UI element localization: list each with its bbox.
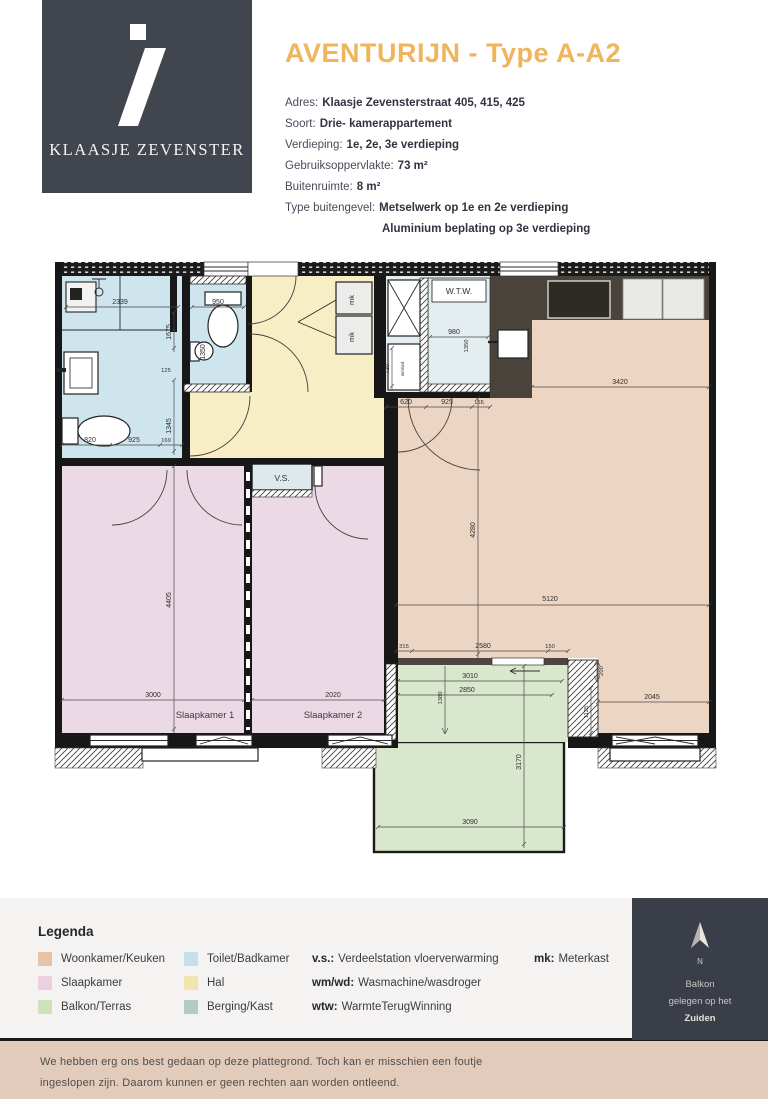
dim-150: 150 bbox=[545, 644, 555, 650]
dim-toilet-top: 950 bbox=[212, 299, 224, 306]
floorplan-page: { "header": { "logo_text": "KLAASJE ZEVE… bbox=[0, 0, 768, 1099]
swatch-woonkamer bbox=[38, 952, 52, 966]
dim-2580: 2580 bbox=[475, 643, 491, 650]
window-top bbox=[204, 262, 248, 276]
window-sill-1 bbox=[142, 748, 258, 761]
legend-item-balkon: Balkon/Terras bbox=[38, 999, 184, 1014]
legend-abbr-vs: v.s.:Verdeelstation vloerverwarming bbox=[312, 951, 534, 966]
cooktop bbox=[548, 281, 610, 318]
dim-925b: 925 bbox=[441, 399, 453, 406]
dim-bath-right-top: 1675 bbox=[166, 324, 173, 340]
info-row-soort: Soort:Drie- kamerappartement bbox=[285, 114, 590, 135]
label-mk-1: mk bbox=[347, 295, 356, 305]
legend-abbr-wmwd: wm/wd:Wasmachine/wasdroger bbox=[312, 975, 534, 990]
sill-hatch-left bbox=[55, 748, 143, 768]
label-wmwd: wm/wd bbox=[400, 361, 405, 376]
info-row-buitenruimte: Buitenruimte:8 m² bbox=[285, 177, 590, 198]
dim-4405: 4405 bbox=[166, 592, 173, 608]
legend-abbr-mk: mk:Meterkast bbox=[534, 951, 609, 966]
legend-heading: Legenda bbox=[38, 924, 94, 939]
logo-wordmark: KLAASJE ZEVENSTER bbox=[42, 140, 252, 160]
wall-bath-toilet bbox=[182, 276, 190, 458]
dim-820: 820 bbox=[84, 437, 96, 444]
legend-item-toilet: Toilet/Badkamer bbox=[184, 951, 312, 966]
wall-bedrooms-top bbox=[55, 458, 390, 466]
legend-item-berging: Berging/Kast bbox=[184, 999, 312, 1014]
info-row-oppervlakte: Gebruiksoppervlakte:73 m² bbox=[285, 156, 590, 177]
wall-berging-bottom bbox=[374, 392, 490, 398]
balcony-door bbox=[492, 658, 544, 665]
outer-wall-right bbox=[709, 262, 716, 748]
north-arrow-icon bbox=[687, 920, 713, 950]
balkon-upper bbox=[398, 664, 568, 742]
window-sill-2 bbox=[610, 748, 700, 761]
page-title: AVENTURIJN - Type A-A2 bbox=[285, 38, 621, 69]
dim-620: 620 bbox=[400, 399, 412, 406]
wall-toilet-bottom bbox=[184, 384, 250, 392]
disclaimer-text: We hebben erg ons best gedaan op deze pl… bbox=[40, 1052, 482, 1094]
legend-grid: Woonkamer/Keuken Toilet/Badkamer v.s.:Ve… bbox=[38, 951, 598, 1014]
dim-315: 315 bbox=[399, 644, 409, 650]
wc-bowl bbox=[208, 305, 238, 347]
dim-1380: 1380 bbox=[438, 692, 444, 705]
dim-2020: 2020 bbox=[325, 692, 341, 699]
entry-door-opening bbox=[248, 262, 298, 276]
dim-200: 200 bbox=[599, 666, 605, 676]
kitchen-appliance-1 bbox=[623, 279, 662, 319]
legend-item-woonkamer: Woonkamer/Keuken bbox=[38, 951, 184, 966]
balkon-lower bbox=[374, 742, 564, 852]
dim-3000: 3000 bbox=[145, 692, 161, 699]
dim-3170: 3170 bbox=[516, 754, 523, 770]
dim-3090: 3090 bbox=[462, 819, 478, 826]
compass-panel: N Balkon gelegen op het Zuiden bbox=[632, 898, 768, 1040]
north-label: N bbox=[632, 957, 768, 966]
label-slaapkamer-1: Slaapkamer 1 bbox=[176, 710, 235, 721]
swatch-berging bbox=[184, 1000, 198, 1014]
dim-3420: 3420 bbox=[612, 379, 628, 386]
swatch-toilet bbox=[184, 952, 198, 966]
floorplan-drawing: 2339 950 1675 1350 125 1345 820 925 169 … bbox=[0, 258, 768, 898]
dim-4280: 4280 bbox=[470, 522, 477, 538]
info-row-buitengevel: Type buitengevel:Metselwerk op 1e en 2e … bbox=[285, 198, 590, 219]
sill-hatch-mid bbox=[322, 748, 376, 768]
outer-wall-top bbox=[55, 262, 716, 276]
dim-125: 125 bbox=[161, 368, 171, 374]
dim-169: 169 bbox=[161, 438, 171, 444]
swatch-balkon bbox=[38, 1000, 52, 1014]
kitchen-appliance-2 bbox=[663, 279, 704, 319]
swatch-hal bbox=[184, 976, 198, 990]
logo-mark-icon bbox=[42, 0, 252, 140]
legend-item-slaapkamer: Slaapkamer bbox=[38, 975, 184, 990]
dim-1125: 1125 bbox=[584, 706, 590, 718]
window-top-2 bbox=[500, 262, 558, 276]
dim-5120: 5120 bbox=[542, 596, 558, 603]
apartment-info: Adres:Klaasje Zevensterstraat 405, 415, … bbox=[285, 93, 590, 240]
info-row-buitengevel-2: Aluminium beplating op 3e verdieping bbox=[285, 219, 590, 240]
label-vs: V.S. bbox=[274, 473, 289, 483]
dim-2045: 2045 bbox=[644, 694, 660, 701]
info-row-adres: Adres:Klaasje Zevensterstraat 405, 415, … bbox=[285, 93, 590, 114]
outer-wall-left bbox=[55, 262, 62, 748]
bedroom2-door-slab bbox=[314, 466, 322, 486]
swatch-slaapkamer bbox=[38, 976, 52, 990]
dim-bath-top: 2339 bbox=[112, 299, 128, 306]
dim-bath-right-bottom: 1345 bbox=[166, 418, 173, 434]
label-mk-2: mk bbox=[347, 332, 356, 342]
dim-3010: 3010 bbox=[462, 673, 478, 680]
dim-155: 155 bbox=[474, 400, 484, 406]
legend-abbr-wtw: wtw:WarmteTerugWinning bbox=[312, 999, 534, 1014]
dim-toilet-side: 1350 bbox=[200, 344, 207, 360]
dim-925: 925 bbox=[128, 437, 140, 444]
dim-2850: 2850 bbox=[459, 687, 475, 694]
wall-balcony-living bbox=[568, 660, 598, 737]
toilet-tank bbox=[62, 418, 78, 444]
room-slaapkamer-2 bbox=[252, 466, 384, 733]
label-slaapkamer-2: Slaapkamer 2 bbox=[304, 710, 363, 721]
label-wtw: W.T.W. bbox=[446, 286, 472, 296]
dim-berging-side: 1350 bbox=[464, 340, 470, 353]
dim-berging-top: 980 bbox=[448, 329, 460, 336]
legend-item-hal: Hal bbox=[184, 975, 312, 990]
info-row-verdieping: Verdieping:1e, 2e, 3e verdieping bbox=[285, 135, 590, 156]
kitchen-sink bbox=[498, 330, 528, 358]
dim-720: 720 bbox=[385, 364, 391, 374]
logo: KLAASJE ZEVENSTER bbox=[42, 0, 252, 193]
compass-caption: Balkon gelegen op het Zuiden bbox=[632, 976, 768, 1027]
